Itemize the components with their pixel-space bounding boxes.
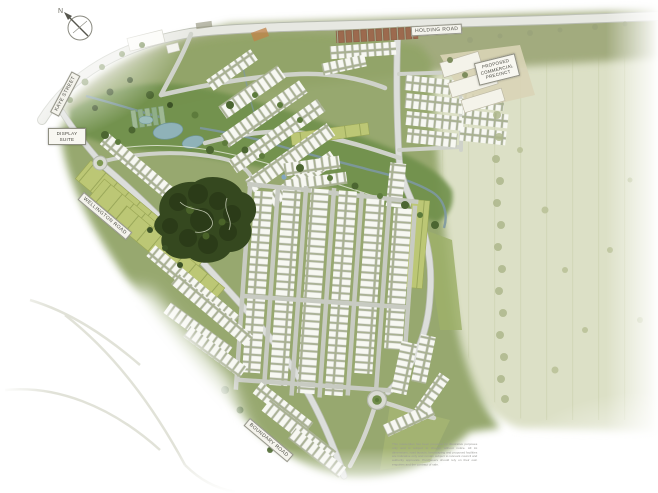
site-plan-rendering — [0, 0, 658, 493]
roundabout-south — [368, 391, 387, 410]
roundabout-north — [93, 156, 107, 170]
masterplan-canvas: N HOLDING ROAD KAYE STREET WELLINGTON RO… — [0, 0, 658, 493]
